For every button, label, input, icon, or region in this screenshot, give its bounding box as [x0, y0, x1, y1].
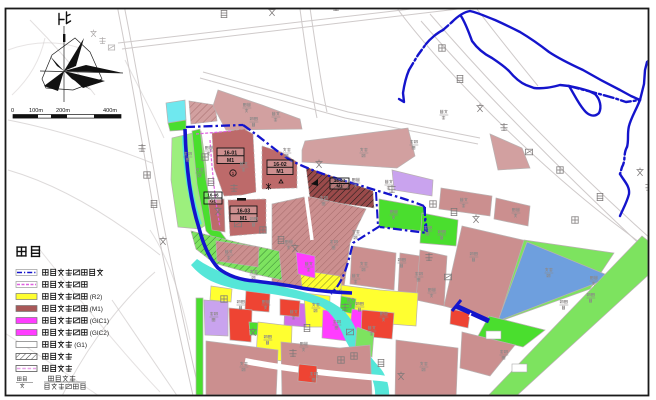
svg-text:(GIC2): (GIC2)	[90, 330, 109, 337]
svg-text:G1: G1	[210, 198, 216, 203]
svg-text:(R2): (R2)	[90, 294, 102, 301]
svg-text:(G1): (G1)	[74, 342, 87, 349]
svg-text:400m: 400m	[103, 108, 117, 114]
svg-text:(M1): (M1)	[90, 306, 103, 313]
svg-text:100m: 100m	[29, 108, 43, 114]
svg-text:M1: M1	[276, 169, 283, 175]
svg-text:1: 1	[232, 171, 235, 177]
svg-text:16-03: 16-03	[237, 208, 250, 214]
svg-text:M1: M1	[227, 158, 234, 164]
svg-text:200m: 200m	[56, 108, 70, 114]
svg-text:16-02: 16-02	[273, 162, 286, 168]
svg-text:0: 0	[11, 108, 14, 114]
svg-text:(GIC1): (GIC1)	[90, 318, 109, 325]
svg-text:16-06: 16-06	[207, 193, 219, 198]
svg-text:16-01: 16-01	[224, 150, 237, 156]
svg-text:16-04: 16-04	[334, 178, 346, 183]
svg-text:M1: M1	[336, 183, 343, 188]
svg-text:M1: M1	[240, 216, 247, 222]
